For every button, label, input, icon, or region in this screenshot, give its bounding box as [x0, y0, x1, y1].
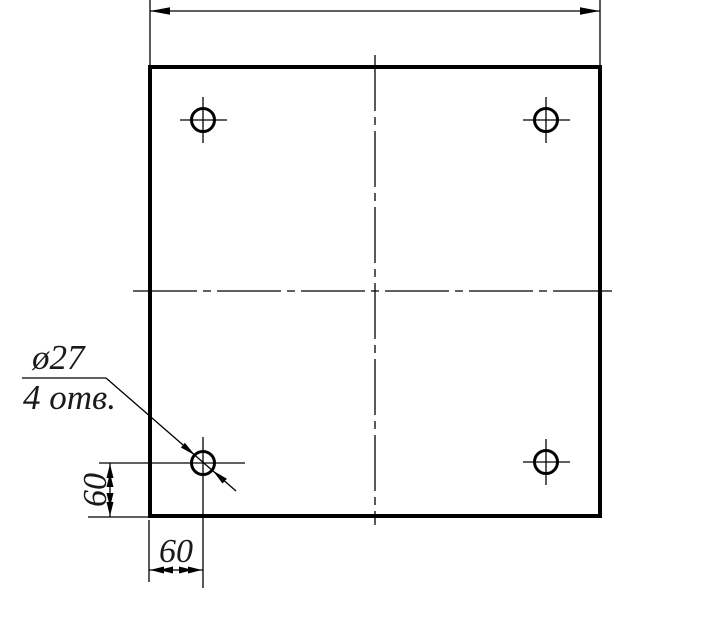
plate-drawing-svg: ø27 4 отв. 60 60 — [0, 0, 713, 631]
drawing-sheet: ø27 4 отв. 60 60 — [0, 0, 713, 631]
top-dim-arrow-left — [150, 7, 170, 15]
bottom-dim-value: 60 — [159, 533, 193, 570]
top-dim-arrow-right — [580, 7, 600, 15]
callout-holes-count-label: 4 отв. — [23, 378, 116, 417]
callout-diameter-label: ø27 — [31, 338, 86, 377]
left-dim-value: 60 — [77, 473, 114, 507]
